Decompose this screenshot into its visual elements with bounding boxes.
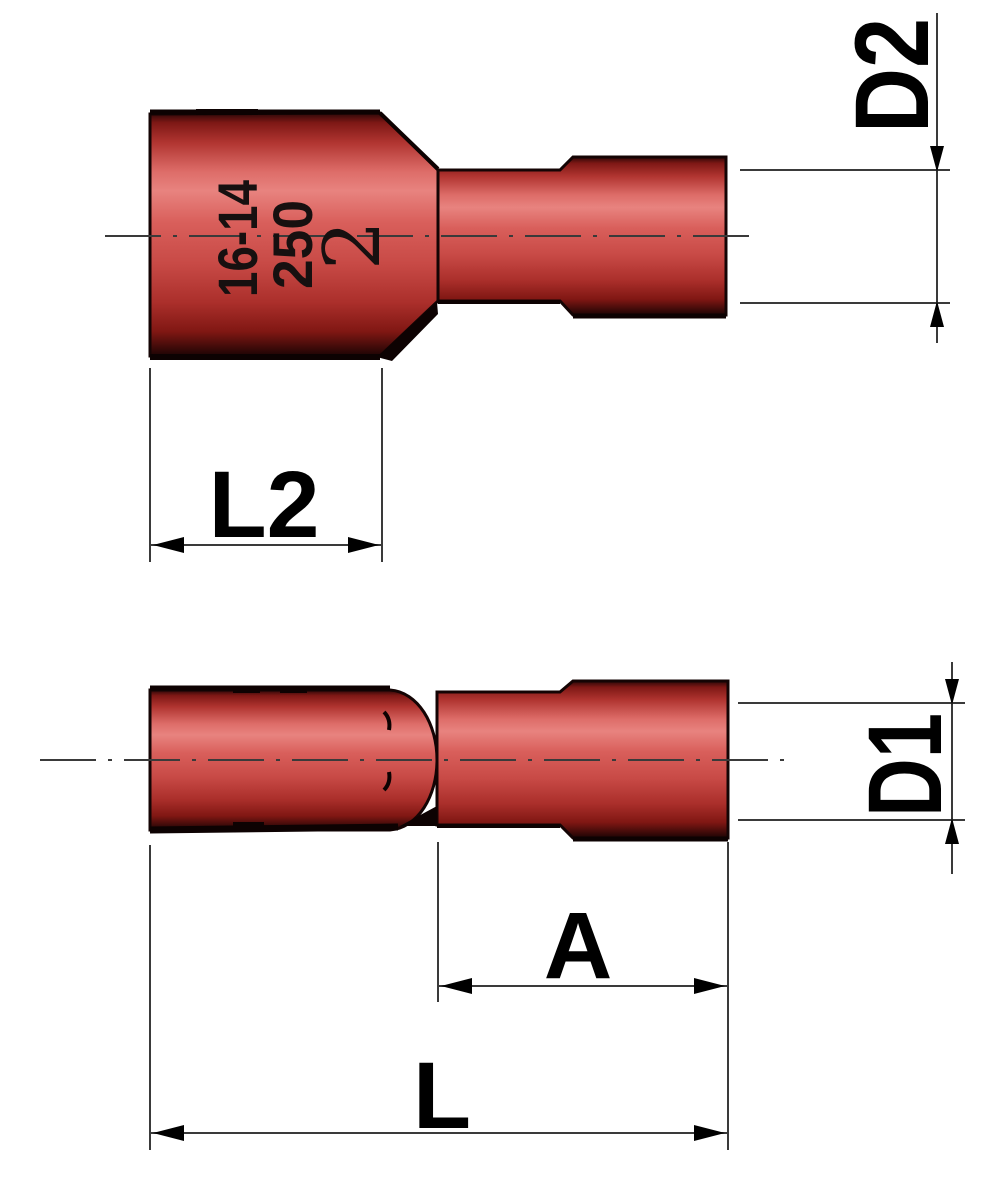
drawing-canvas: 16-14 250 2 D2 L2 — [0, 0, 1000, 1192]
l2-arrow-left — [153, 537, 184, 553]
a-label: A — [544, 893, 613, 999]
side-view-bottom-edge — [150, 827, 398, 830]
d1-arrow-top — [945, 679, 959, 705]
a-arrow-right — [694, 978, 725, 994]
l-label: L — [413, 1043, 471, 1149]
d2-arrow-top — [930, 146, 944, 172]
l2-arrow-right — [348, 537, 379, 553]
marking-wire-gauge: 16-14 — [206, 180, 269, 297]
d1-arrow-bottom — [945, 818, 959, 844]
side-view-seam-mark-3 — [233, 822, 264, 831]
l-arrow-right — [694, 1125, 725, 1141]
dimension-l2: L2 — [150, 368, 382, 562]
terminal-drawing-svg: 16-14 250 2 D2 L2 — [0, 0, 1000, 1192]
dimension-d1: D1 — [738, 662, 965, 874]
l2-label: L2 — [209, 452, 320, 558]
side-view-seam-mark-1 — [233, 686, 260, 693]
side-view-seam-mark-2 — [280, 686, 307, 693]
d2-arrow-bottom — [930, 301, 944, 327]
top-view-mold-seam-mark — [196, 109, 258, 115]
l-arrow-left — [153, 1125, 184, 1141]
terminal-side-view — [40, 681, 787, 839]
terminal-top-view: 16-14 250 2 — [105, 109, 758, 361]
marking-logo: 2 — [308, 220, 398, 270]
dimension-d2: D2 — [740, 13, 951, 343]
dimension-a: A — [438, 842, 728, 1150]
d1-label: D1 — [847, 713, 964, 817]
a-arrow-left — [441, 978, 472, 994]
d2-label: D2 — [834, 18, 951, 133]
